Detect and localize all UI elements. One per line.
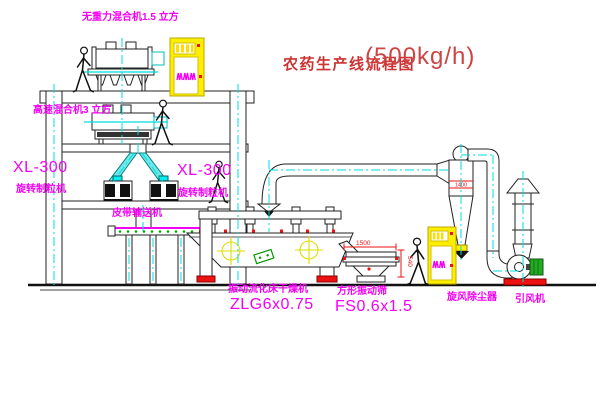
label-cyclone: 旋风除尘器: [447, 292, 497, 303]
label-gravity-mixer: 无重力混合机1.5 立方: [82, 12, 179, 23]
granulator-left: [104, 176, 132, 201]
fluid-bed-dryer: [187, 207, 358, 282]
label-high-speed-mixer: 高速混合机3 立方: [33, 105, 111, 116]
label-granulator-right-name: 旋转制粒机: [178, 188, 228, 199]
process-flow-drawing: 1400: [0, 0, 600, 403]
induced-draft-fan: [504, 244, 546, 285]
fan-base: [504, 279, 546, 285]
label-fan: 引风机: [515, 294, 545, 305]
label-dryer-name: 振动流化床干燥机: [228, 284, 308, 295]
sieve-length-dim: 1500: [356, 240, 371, 247]
fan-motor: [530, 259, 543, 275]
label-granulator-left-model: XL-300: [13, 159, 68, 177]
vibrating-sieve: [343, 252, 399, 282]
label-granulator-left-name: 旋转制粒机: [16, 184, 66, 195]
exhaust-duct: [258, 164, 437, 217]
granulator-right: [150, 176, 178, 201]
control-cabinet-right: [428, 227, 456, 284]
label-granulator-right-model: XL-300: [177, 162, 232, 180]
ground-line: [28, 285, 596, 290]
drawing-title-capacity: (500kg/h): [365, 43, 475, 71]
gravity-mixer: [82, 42, 164, 91]
label-dryer-model: ZLG6x0.75: [230, 296, 314, 314]
label-belt-conveyor: 皮带输送机: [112, 208, 162, 219]
label-sieve-name: 方形振动筛: [337, 286, 387, 297]
sieve-height-dim: 540: [406, 256, 413, 267]
cyclone-outlet-duct: [468, 149, 512, 278]
label-sieve-model: FS0.6x1.5: [335, 298, 412, 316]
control-cabinet-top: [170, 38, 204, 96]
